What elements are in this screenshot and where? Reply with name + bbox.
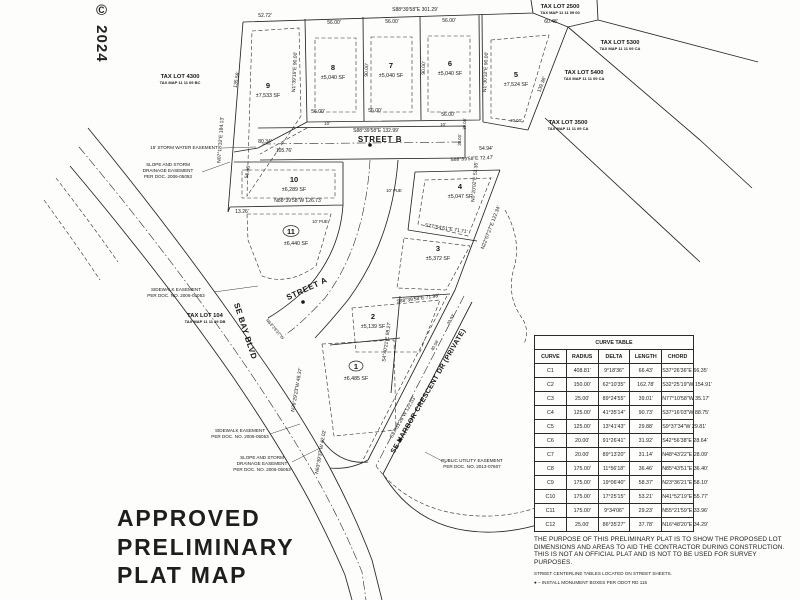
lot-6-area: ±5,040 SF xyxy=(438,71,463,77)
cell: S9°37'34"W 29.81' xyxy=(662,420,694,434)
sidewalk-easement-label: PER DOC. NO. 2006-05053 xyxy=(147,293,205,298)
dim: N63°39'37"W 42.02' xyxy=(314,429,328,474)
notes-block: THE PURPOSE OF THIS PRELIMINARY PLAT IS … xyxy=(534,536,790,585)
slope-easement-label: PER DOC. 2006-05053 xyxy=(144,174,192,179)
dim-streetb-bearing: S88°39'58"E 132.99' xyxy=(353,128,399,134)
dim-pue: 10' PUE xyxy=(312,219,328,224)
cell: 37.78' xyxy=(630,518,662,532)
dim: N1°30'32"E 90.00' xyxy=(482,52,490,93)
tax-lot-3500-map: TAX MAP 11 11 09 CA xyxy=(548,126,589,131)
cell: C2 xyxy=(535,378,567,392)
curve-row: C5125.00'13°41'43"29.88'S9°37'34"W 29.81… xyxy=(535,420,694,434)
lot-2-number: 2 xyxy=(371,312,375,321)
col-chord: CHORD xyxy=(662,350,694,364)
harbor-crescent-label: SE HARBOR CRESCENT DR (PRIVATE) xyxy=(390,328,467,455)
cell: 31.92' xyxy=(630,434,662,448)
lot-10-area: ±6,289 SF xyxy=(282,187,307,193)
dim-top-bearing: S88°39'58"E 301.29' xyxy=(392,7,438,13)
lot-7-area: ±5,040 SF xyxy=(379,73,404,79)
dim: 54.94' xyxy=(479,146,493,152)
monument-legend: ● – INSTALL MONUMENT BOXES PER ODOT RD 1… xyxy=(534,580,790,585)
cell: 19°06'40" xyxy=(598,476,630,490)
dim: N26°29'23"W 48.37' xyxy=(290,367,304,412)
dim: 13.26' xyxy=(235,209,249,215)
curve-table-header: CURVE RADIUS DELTA LENGTH CHORD xyxy=(535,350,694,364)
cell: 150.00' xyxy=(566,378,598,392)
title-line: PRELIMINARY xyxy=(117,533,294,562)
cell: 125.00' xyxy=(566,406,598,420)
lot-4-number: 4 xyxy=(458,182,463,191)
slope-easement-label: SLOPE AND STORM xyxy=(240,455,284,460)
curve-row: C720.00'89°13'20"31.14'N48°43'22"E 28.09… xyxy=(535,448,694,462)
cell: 9°34'06" xyxy=(598,504,630,518)
curve-row: C1408.81'9°18'36"66.43'S37°26'36"E 66.35… xyxy=(535,364,694,378)
public-utility-easement-label: PUBLIC UTILITY EASEMENT xyxy=(441,458,503,463)
cell: 89°13'20" xyxy=(598,448,630,462)
cell: 408.81' xyxy=(566,364,598,378)
dim: 30.00' xyxy=(457,134,462,146)
dim: 10' xyxy=(324,121,330,126)
cell: N16°48'20"E 34.29' xyxy=(662,518,694,532)
cell: 175.00' xyxy=(566,490,598,504)
curve-row: C10175.00'17°25'15"53.21'N41°52'19"E 55.… xyxy=(535,490,694,504)
dim: 56.00' xyxy=(368,108,382,114)
dim: N1°39'16"E 90.00' xyxy=(291,52,299,93)
cell: 41°35'14" xyxy=(598,406,630,420)
sidewalk-easement-label: SIDEWALK EASEMENT xyxy=(151,287,201,292)
dim: 10' xyxy=(440,122,446,127)
storm-water-easement-label: 15' STORM WATER EASEMENT xyxy=(150,145,218,150)
cell: N55°21'59"E 33.96' xyxy=(662,504,694,518)
cell: 39.01' xyxy=(630,392,662,406)
tax-lot-104-map: TAX MAP 11 11 09 DB xyxy=(185,319,226,324)
dim: 90.00' xyxy=(421,61,427,75)
slope-easement-label: DRAINAGE EASEMENT xyxy=(237,461,288,466)
curve-row: C2150.00'62°10'35"162.78'S32°25'19"W 154… xyxy=(535,378,694,392)
cell: C8 xyxy=(535,462,567,476)
cell: C11 xyxy=(535,504,567,518)
cell: 13°41'43" xyxy=(598,420,630,434)
dim-pue: 10' PUE xyxy=(386,188,402,193)
dim: 20.00' xyxy=(510,118,522,123)
title-line: PLAT MAP xyxy=(117,561,294,590)
lot-9-number: 9 xyxy=(266,81,270,90)
lot-11-area: ±6,440 SF xyxy=(284,241,309,247)
cell: 20.00' xyxy=(566,448,598,462)
lot-9-area: ±7,533 SF xyxy=(256,93,281,99)
dim: 56.00' xyxy=(385,19,399,25)
lot-8-number: 8 xyxy=(331,63,335,72)
street-a-label: STREET A xyxy=(285,275,329,302)
cell: 89°24'55" xyxy=(598,392,630,406)
cell: 20.00' xyxy=(566,434,598,448)
title-line: APPROVED xyxy=(117,504,294,533)
cell: N48°43'22"E 28.09' xyxy=(662,448,694,462)
title-block: APPROVED PRELIMINARY PLAT MAP xyxy=(117,504,294,590)
sidewalk-easement-label: SIDEWALK EASEMENT xyxy=(215,428,265,433)
lot-1-number: 1 xyxy=(354,362,358,371)
lot-5-number: 5 xyxy=(514,70,518,79)
curve-row: C1225.00'86°35'27"37.78'N16°48'20"E 34.2… xyxy=(535,518,694,532)
cell: 175.00' xyxy=(566,476,598,490)
dim: 135.56' xyxy=(233,71,242,88)
lot-4-area: ±5,047 SF xyxy=(448,194,473,200)
cell: N85°43'51"E 36.40' xyxy=(662,462,694,476)
cell: 162.78' xyxy=(630,378,662,392)
dim: 56.00' xyxy=(327,20,341,26)
lot-7-number: 7 xyxy=(389,61,393,70)
curve-row: C8175.00'11°56'18"36.46'N85°43'51"E 36.4… xyxy=(535,462,694,476)
cell: 175.00' xyxy=(566,504,598,518)
cell: N41°52'19"E 55.77' xyxy=(662,490,694,504)
cell: 29.23' xyxy=(630,504,662,518)
col-delta: DELTA xyxy=(598,350,630,364)
cell: C6 xyxy=(535,434,567,448)
cell: 17°25'15" xyxy=(598,490,630,504)
curve-table-title: CURVE TABLE xyxy=(535,336,694,350)
sidewalk-easement-label: PER DOC. NO. 2006-05053 xyxy=(211,434,269,439)
cell: S37°16'03"W 88.75' xyxy=(662,406,694,420)
cell: 66.43' xyxy=(630,364,662,378)
dim: N22°07'27"E 122.34' xyxy=(480,205,502,250)
cell: 11°56'18" xyxy=(598,462,630,476)
cell: 58.37' xyxy=(630,476,662,490)
cell: 125.00' xyxy=(566,420,598,434)
street-b-label: STREET B xyxy=(358,135,402,144)
lot-2-area: ±5,139 SF xyxy=(361,324,386,330)
dim: 33.93' xyxy=(446,313,456,326)
cell: 25.00' xyxy=(566,392,598,406)
cell: 31.14' xyxy=(630,448,662,462)
cell: C7 xyxy=(535,448,567,462)
col-curve: CURVE xyxy=(535,350,567,364)
purpose-note: THE PURPOSE OF THIS PRELIMINARY PLAT IS … xyxy=(534,536,790,566)
dim: N63°29'37"W xyxy=(265,318,286,342)
plat-map-sheet: STREET B STREET A SE BAY BLVD SE HARBOR … xyxy=(0,0,800,600)
dim: 90.00' xyxy=(364,63,370,77)
lot-6-number: 6 xyxy=(448,59,452,68)
slope-easement-label: DRAINAGE EASEMENT xyxy=(143,168,194,173)
dim: 56.00' xyxy=(311,109,325,115)
lot-3-number: 3 xyxy=(436,244,440,253)
cell: 175.00' xyxy=(566,462,598,476)
lot-8-area: ±5,040 SF xyxy=(321,75,346,81)
monument-legend-text: – INSTALL MONUMENT BOXES PER ODOT RD 115 xyxy=(537,580,647,585)
cell: 91°26'41" xyxy=(598,434,630,448)
curve-row: C325.00'89°24'55"39.01'N77°10'58"W 35.17… xyxy=(535,392,694,406)
dim: N88°39'58"W 126.73' xyxy=(274,198,321,204)
lot-1-area: ±6,485 SF xyxy=(344,376,369,382)
cell: 36.46' xyxy=(630,462,662,476)
col-radius: RADIUS xyxy=(566,350,598,364)
dim: 56.00' xyxy=(441,112,455,118)
cell: C5 xyxy=(535,420,567,434)
dim: S88°39'58"E 72.47' xyxy=(450,155,493,163)
public-utility-easement-label: PER DOC. NO. 2013-07607 xyxy=(443,464,501,469)
dim: 56.36' xyxy=(244,165,252,179)
cell: C1 xyxy=(535,364,567,378)
cell: C10 xyxy=(535,490,567,504)
cell: 53.21' xyxy=(630,490,662,504)
lot-labels: 9 ±7,533 SF 8 ±5,040 SF 7 ±5,040 SF 6 ±5… xyxy=(256,59,529,382)
col-length: LENGTH xyxy=(630,350,662,364)
dim: 30.00' xyxy=(462,118,467,130)
curve-table: CURVE TABLE CURVE RADIUS DELTA LENGTH CH… xyxy=(534,335,694,532)
cell: C4 xyxy=(535,406,567,420)
cell: 25.00' xyxy=(566,518,598,532)
curve-row: C620.00'91°26'41"31.92'S42°56'38"E 28.64… xyxy=(535,434,694,448)
cell: S32°25'19"W 154.91' xyxy=(662,378,694,392)
dim: 105.76' xyxy=(276,148,292,154)
slope-easement-label: PER DOC. NO. 2006-05053 xyxy=(233,467,291,472)
dim: 52.72' xyxy=(258,13,272,19)
curve-row: C9175.00'19°06'40"58.37'N23°36'21"E 58.1… xyxy=(535,476,694,490)
curve-row: C4125.00'41°35'14"90.73'S37°16'03"W 88.7… xyxy=(535,406,694,420)
cell: 86°35'27" xyxy=(598,518,630,532)
dim-west-line: N07°18'32"E 184.13' xyxy=(216,117,225,163)
tax-lot-2500-map: TAX MAP 11 11 09 00 xyxy=(540,10,580,15)
tax-lot-5300-map: TAX MAP 11 11 09 CA xyxy=(600,46,641,51)
lot-5-area: ±7,524 SF xyxy=(504,82,529,88)
curve-row: C11175.00'9°34'06"29.23'N55°21'59"E 33.9… xyxy=(535,504,694,518)
dim: 56.00' xyxy=(442,18,456,24)
monument-dot xyxy=(301,300,305,304)
cell: C12 xyxy=(535,518,567,532)
lot-10-number: 10 xyxy=(290,175,298,184)
cell: 9°18'36" xyxy=(598,364,630,378)
cell: S42°56'38"E 28.64' xyxy=(662,434,694,448)
tax-lot-5400-map: TAX MAP 11 11 09 CA xyxy=(564,76,605,81)
cell: 90.73' xyxy=(630,406,662,420)
dim: 80.34' xyxy=(258,139,272,145)
cell: 62°10'35" xyxy=(598,378,630,392)
dim: N0°20'02"E 52.35' xyxy=(470,161,480,202)
tax-lot-4300-map: TAX MAP 11 11 09 BC xyxy=(160,80,201,85)
cell: 29.88' xyxy=(630,420,662,434)
slope-easement-label: SLOPE AND STORM xyxy=(146,162,190,167)
cell: C9 xyxy=(535,476,567,490)
copyright-watermark: © 2024 xyxy=(93,2,110,63)
cell: N77°10'58"W 35.17' xyxy=(662,392,694,406)
lot-11-number: 11 xyxy=(287,227,295,236)
dim: S88°39'58"E 71.98' xyxy=(396,293,439,305)
centerline-note: STREET CENTERLINE TABLES LOCATED ON STRE… xyxy=(534,571,790,576)
cell: S37°26'36"E 66.35' xyxy=(662,364,694,378)
lot-3-area: ±5,372 SF xyxy=(426,256,451,262)
dim: 60.48' xyxy=(544,19,558,25)
cell: C3 xyxy=(535,392,567,406)
cell: N23°36'21"E 58.10' xyxy=(662,476,694,490)
